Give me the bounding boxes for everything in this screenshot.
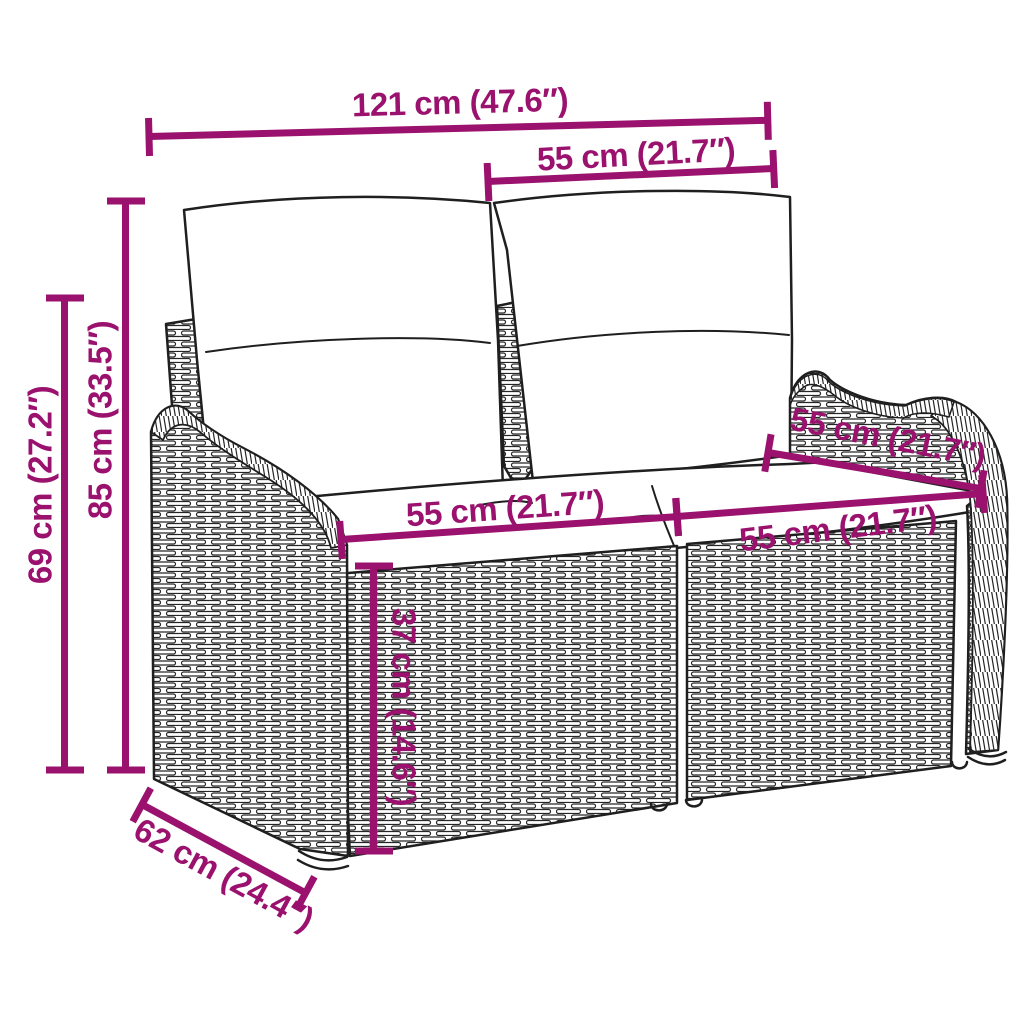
dim-tick [107,767,145,774]
back-cushion-right [494,191,792,482]
dim-total-height-label: 85 cm (33.5″) [84,321,117,519]
dim-tick [107,198,145,205]
dim-armrest-height-label: 69 cm (27.2″) [24,386,57,584]
front-panel-right [687,521,956,800]
dim-tick [46,767,84,774]
dim-total-height-line [122,201,129,770]
dim-tick [355,563,393,570]
dim-seat-height-line [370,566,377,851]
dim-tick [145,117,153,155]
product-dimension-diagram: 121 cm (47.6″) 55 cm (21.7″) 85 cm (33.5… [0,0,1024,1024]
dim-seat-height-label: 37 cm (14.6″) [388,608,421,806]
dim-tick [355,848,393,855]
dim-tick [764,101,772,139]
dim-tick [46,295,84,302]
dim-armrest-height-line [61,298,68,770]
dim-total-width-label: 121 cm (47.6″) [352,83,569,122]
